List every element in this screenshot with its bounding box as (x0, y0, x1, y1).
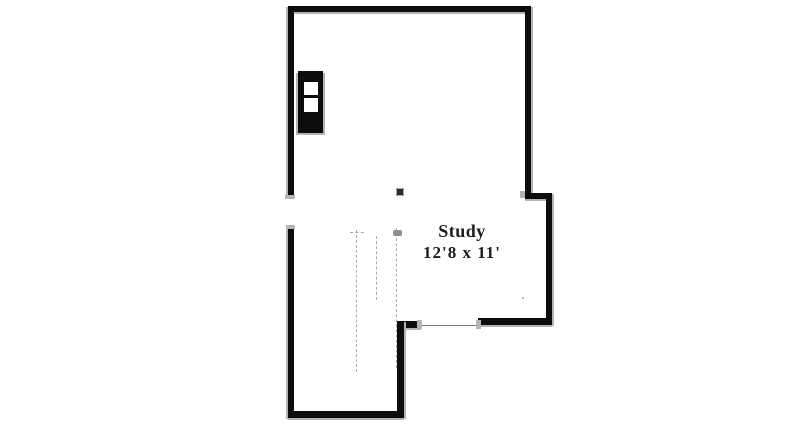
wall-left-upper (288, 6, 294, 198)
wall-right-upper (525, 6, 531, 194)
wall-notch-cap (520, 191, 525, 198)
stair-dashed-line (356, 230, 357, 372)
floor-plan-canvas: Study 12'8 x 11' (0, 0, 800, 429)
wall-left-lower (288, 228, 294, 418)
flue-box-icon (304, 98, 318, 112)
fireplace-icon (298, 71, 323, 133)
door-jamb-cap (417, 320, 422, 329)
wall-bottom-right (478, 318, 552, 325)
wall-bottom (288, 411, 404, 418)
left-opening-cap-lower (286, 225, 295, 229)
room-dimensions-label: 12'8 x 11' (362, 242, 562, 263)
stray-speck (522, 297, 524, 299)
room-name-label: Study (362, 220, 562, 242)
left-opening-cap-upper (285, 195, 295, 199)
flue-box-icon (304, 82, 318, 95)
column-dot-marker (397, 189, 403, 195)
wall-top (288, 6, 531, 12)
wall-corridor-right (397, 321, 404, 418)
door-opening-line (421, 325, 478, 326)
door-jamb-cap (476, 320, 481, 329)
room-label-block: Study 12'8 x 11' (362, 220, 562, 263)
